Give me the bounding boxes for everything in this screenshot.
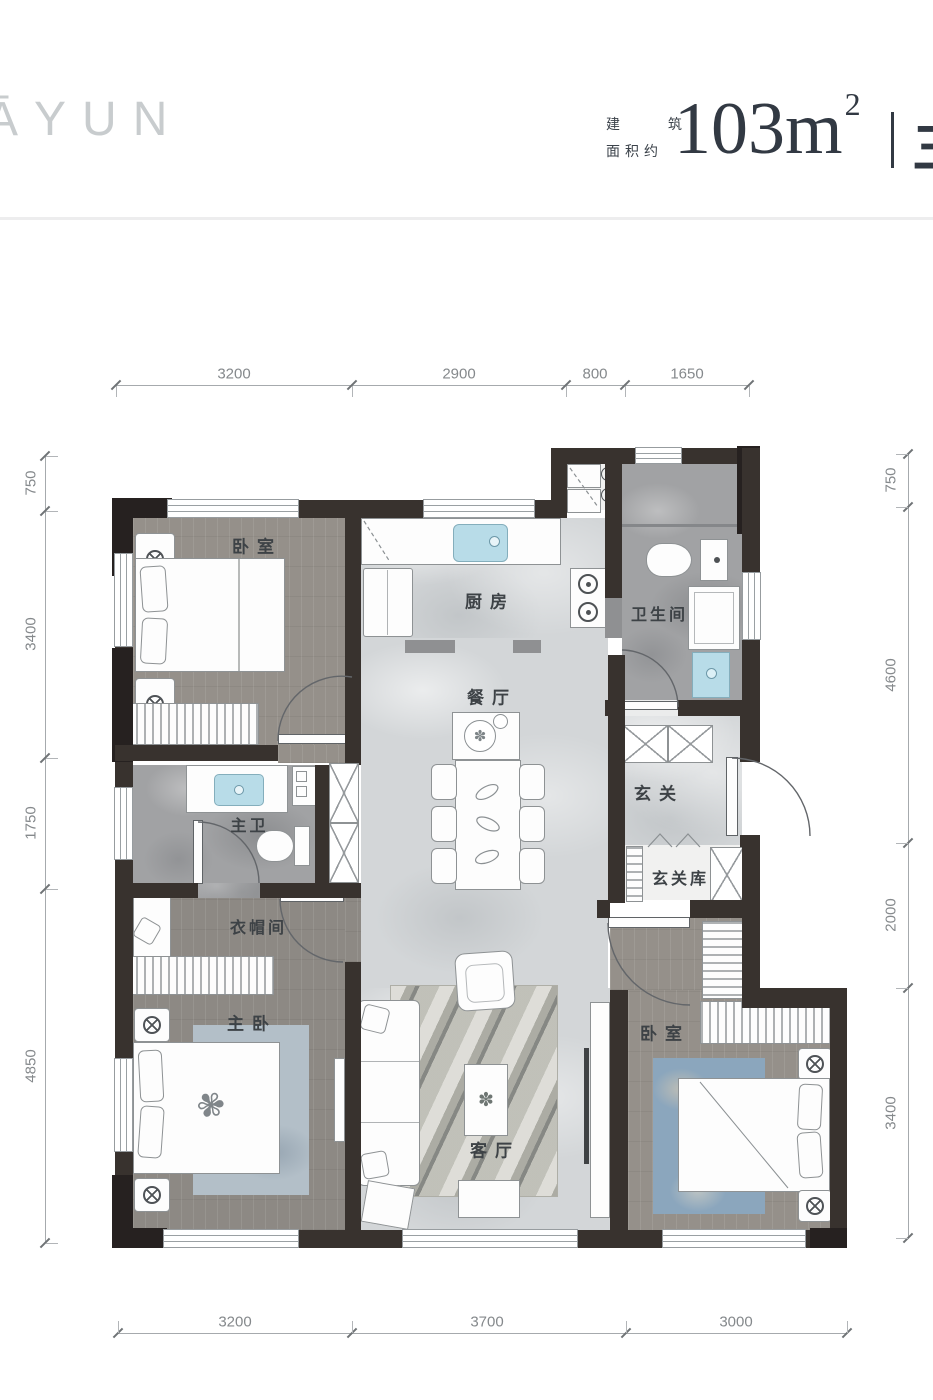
header-rule [0, 217, 933, 220]
window [662, 1229, 806, 1248]
storage-shelf [626, 846, 643, 902]
blanket-fold [238, 559, 240, 671]
utility-appliance [567, 464, 601, 488]
lamp-icon [806, 1055, 824, 1073]
wall [690, 900, 745, 918]
burner-icon [578, 574, 598, 594]
pillow [140, 617, 168, 664]
window [402, 1229, 578, 1248]
corner-table [361, 1180, 416, 1230]
floor-plan-page: ĀYUN 建 筑 面积约 103m2 三 [0, 0, 933, 1400]
wardrobe [702, 921, 744, 999]
wall [115, 883, 198, 898]
bedroom-door-leaf [608, 917, 690, 928]
dim-stub [896, 507, 908, 508]
pillow [139, 565, 168, 613]
wall-tv-panel [334, 1058, 345, 1142]
dim-label: 2000 [883, 898, 900, 931]
dim-stub [118, 1321, 119, 1333]
dimension-line-right [908, 454, 909, 1238]
tv-console [590, 1002, 610, 1218]
toilet-tank [294, 826, 310, 866]
dining-chair [431, 848, 457, 884]
wall [740, 835, 760, 847]
shoe-cabinet [668, 725, 713, 763]
hall-cabinet [329, 823, 359, 883]
cabinet-detail [296, 786, 307, 797]
wall [260, 883, 361, 898]
dining-chair [519, 764, 545, 800]
dim-label: 4600 [883, 658, 900, 691]
dim-label: 3700 [470, 1314, 503, 1331]
dim-stub [46, 758, 58, 759]
plant-icon: ✽ [478, 1090, 494, 1111]
cabinet-detail [296, 771, 307, 782]
sink-drain [234, 785, 244, 795]
dim-stub [625, 386, 626, 397]
door-opening [198, 883, 260, 898]
wall [605, 448, 622, 598]
room-label-bathroom: 卫生间 [628, 601, 688, 625]
dim-label: 2900 [442, 366, 475, 383]
dim-stub [46, 511, 58, 512]
wall [597, 900, 610, 918]
window [742, 572, 761, 640]
wall [345, 962, 361, 1248]
fridge-door-line [387, 570, 388, 635]
coffee-table: ✽ [464, 1064, 508, 1136]
burner-icon [578, 602, 598, 622]
layout-type-partial-text: 三 [912, 104, 933, 183]
dim-label: 1650 [670, 366, 703, 383]
brand-logo: ĀYUN [0, 92, 183, 147]
dim-label: 3200 [217, 366, 250, 383]
dining-chair [431, 806, 457, 842]
wall [608, 655, 625, 903]
dim-label: 3000 [719, 1314, 752, 1331]
dim-stub [46, 456, 58, 457]
pillow [137, 1105, 165, 1159]
dim-stub [566, 386, 567, 397]
dimension-line-left [45, 456, 46, 1243]
room-label-cloakroom: 衣帽间 [227, 914, 287, 938]
dim-stub [46, 889, 58, 890]
plant-icon [493, 714, 508, 729]
room-label-master-bathroom: 主卫 [227, 812, 268, 836]
dim-stub [896, 988, 908, 989]
room-label-master-bedroom: 主卧 [219, 1010, 277, 1035]
bedroom-door-leaf [278, 734, 352, 744]
dim-stub [896, 843, 908, 844]
area-label-line2: 面积约 [606, 141, 663, 161]
dining-table [455, 760, 521, 890]
room-label-dining: 餐厅 [459, 684, 517, 709]
window [635, 447, 682, 464]
utility-appliance [567, 489, 601, 513]
room-label-kitchen: 厨房 [457, 588, 515, 613]
window [114, 1058, 133, 1152]
dim-label: 1750 [23, 806, 40, 839]
flush-button [714, 557, 720, 563]
wardrobe-rack [127, 956, 274, 995]
dim-label: 3400 [23, 617, 40, 650]
master-bath-door-leaf [193, 820, 203, 884]
pillow [796, 1131, 823, 1179]
sofa-pillow [360, 1150, 390, 1180]
wall [315, 765, 329, 885]
dim-label: 3200 [218, 1314, 251, 1331]
dim-stub [46, 1243, 58, 1244]
wall [740, 712, 760, 762]
fridge [363, 568, 413, 637]
room-label-bedroom-top: 卧室 [224, 533, 282, 558]
toilet-bowl [646, 543, 692, 577]
window [114, 553, 133, 647]
side-table [458, 1180, 520, 1218]
room-label-foyer: 玄关 [626, 780, 684, 805]
wall [610, 990, 628, 1233]
wall [830, 988, 847, 1248]
wall-stub [405, 640, 455, 653]
wall [605, 598, 622, 638]
dim-label: 3400 [883, 1096, 900, 1129]
wall [112, 1228, 167, 1248]
pillow [138, 1049, 165, 1102]
dim-stub [352, 1321, 353, 1333]
dim-stub [626, 1321, 627, 1333]
room-label-foyer-storage: 玄关库 [649, 865, 709, 889]
dining-chair [519, 806, 545, 842]
radiator [127, 703, 259, 745]
dim-stub [896, 1238, 908, 1239]
sink-drain [489, 536, 500, 547]
room-label-living-room: 客厅 [462, 1137, 520, 1162]
dining-chair [431, 764, 457, 800]
area-superscript: 2 [845, 86, 861, 122]
window [423, 499, 535, 518]
lamp-icon [806, 1197, 824, 1215]
lamp-icon [143, 1016, 161, 1034]
window [114, 787, 133, 860]
tv-icon [584, 1048, 589, 1164]
dim-label: 750 [883, 467, 900, 492]
dim-stub [116, 386, 117, 397]
plant-icon: ✽ [464, 720, 496, 752]
header-divider-bar [891, 112, 894, 168]
dim-stub [847, 1321, 848, 1333]
vanity-doors [694, 592, 734, 644]
entry-door-leaf [726, 757, 738, 836]
dimension-line-top [116, 385, 749, 386]
window [163, 1229, 299, 1248]
dim-label: 4850 [23, 1049, 40, 1082]
shoe-cabinet [623, 725, 668, 763]
door-arc [732, 758, 810, 836]
dim-label: 800 [582, 366, 607, 383]
wall [810, 1228, 847, 1248]
dining-chair [519, 848, 545, 884]
dim-stub [749, 386, 750, 397]
wall-stub [513, 640, 541, 653]
lamp-icon [143, 1186, 161, 1204]
wall [605, 700, 622, 716]
dim-label: 750 [23, 470, 40, 495]
dim-stub [352, 386, 353, 397]
wall [678, 700, 760, 716]
shower-partition [622, 524, 740, 527]
area-value: 103m2 [674, 88, 861, 166]
wall [115, 745, 278, 761]
bathroom-door-leaf [620, 701, 678, 710]
wall [345, 500, 361, 765]
dimension-line-bottom [118, 1333, 847, 1334]
window [167, 499, 299, 518]
door-opening [278, 745, 345, 763]
storage-cabinet [710, 847, 744, 903]
dim-stub [896, 454, 908, 455]
hall-cabinet [329, 763, 359, 823]
armchair-cushion [465, 963, 506, 1004]
room-label-bedroom-bottom: 卧室 [632, 1020, 690, 1045]
shower-drain [706, 668, 717, 679]
door-opening [345, 898, 361, 962]
pillow [797, 1083, 823, 1130]
